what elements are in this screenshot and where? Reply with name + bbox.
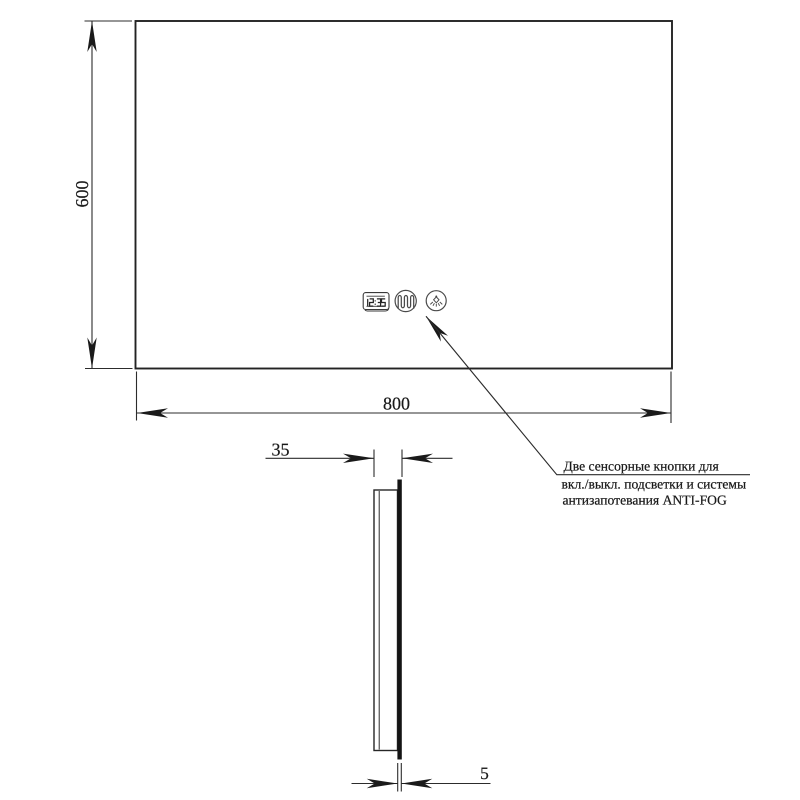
svg-text:Две сенсорные кнопки для: Две сенсорные кнопки для bbox=[564, 458, 719, 473]
svg-text:800: 800 bbox=[383, 394, 410, 414]
svg-text:5: 5 bbox=[480, 763, 489, 783]
svg-text:600: 600 bbox=[72, 181, 92, 208]
svg-text:35: 35 bbox=[272, 440, 290, 460]
svg-text:вкл./выкл. подсветки и системы: вкл./выкл. подсветки и системы bbox=[562, 477, 747, 492]
svg-text:антизапотевания ANTI-FOG: антизапотевания ANTI-FOG bbox=[563, 493, 727, 508]
